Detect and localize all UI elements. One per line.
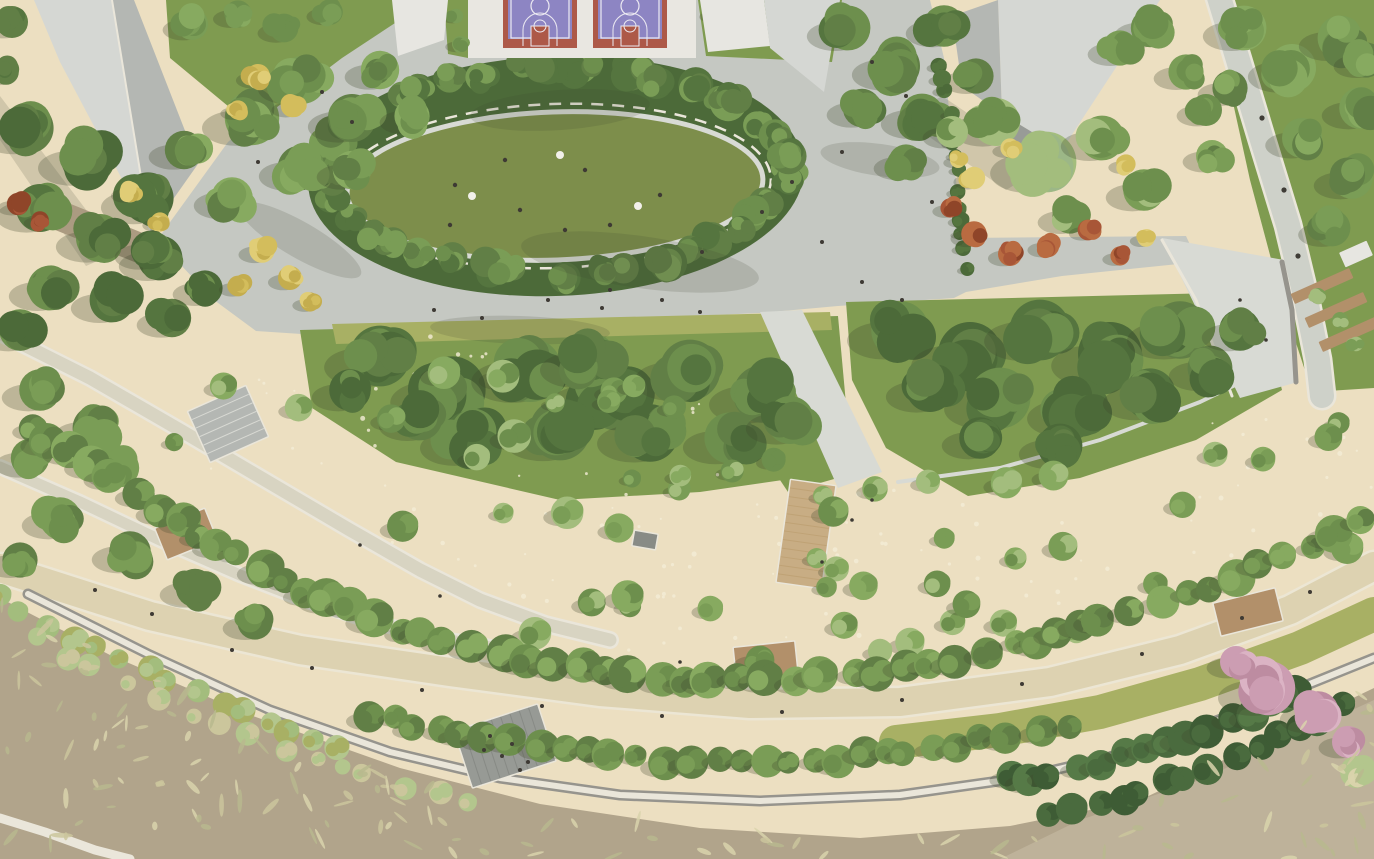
- picnic-table: [632, 530, 658, 550]
- roof-b: [700, 0, 770, 52]
- scene-canvas: [0, 0, 1374, 859]
- aerial-park-rendering: [0, 0, 1374, 859]
- basketball-courts: [468, 0, 696, 58]
